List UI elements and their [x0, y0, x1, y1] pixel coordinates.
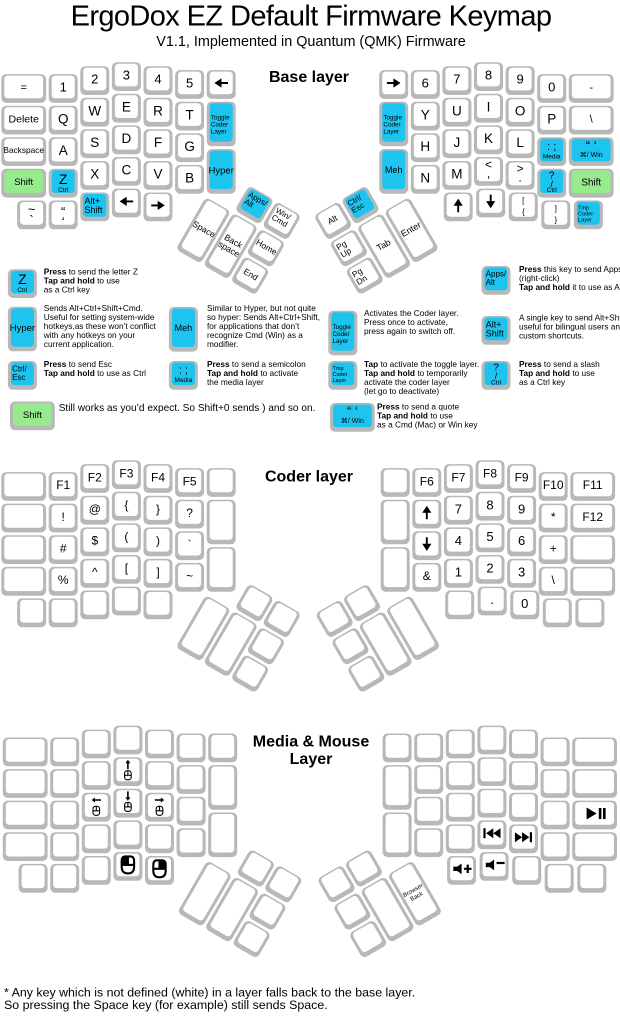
svg-text:Layer: Layer: [211, 129, 227, 136]
svg-text:Backspace: Backspace: [3, 145, 44, 155]
svg-text:Media: Media: [543, 153, 561, 160]
svg-text:Layer: Layer: [578, 218, 592, 224]
svg-text:Delete: Delete: [9, 113, 40, 125]
svg-text:Coder: Coder: [333, 331, 350, 338]
svg-text:Hyper: Hyper: [209, 165, 234, 176]
svg-text:&: &: [423, 569, 431, 583]
svg-text:So pressing the Space key (for: So pressing the Space key (for example) …: [4, 998, 328, 1012]
svg-text:}: }: [156, 502, 160, 516]
svg-text:Shift: Shift: [85, 205, 104, 215]
svg-text:5: 5: [486, 529, 493, 544]
svg-text:-: -: [589, 82, 593, 94]
svg-text:as a Cmd (Mac) or Win key: as a Cmd (Mac) or Win key: [377, 420, 478, 430]
svg-text:C: C: [122, 163, 132, 178]
svg-text:Layer: Layer: [383, 129, 399, 136]
svg-text:modifier.: modifier.: [207, 339, 238, 349]
svg-text:Shift: Shift: [581, 177, 601, 188]
svg-text:(: (: [124, 530, 128, 544]
svg-text:4: 4: [455, 533, 462, 548]
svg-text:!: !: [62, 510, 65, 524]
svg-text:D: D: [122, 131, 132, 146]
svg-text:as a Ctrl key: as a Ctrl key: [519, 377, 566, 387]
svg-text:F2: F2: [88, 470, 102, 484]
svg-text:Media & Mouse: Media & Mouse: [253, 734, 370, 751]
svg-text:X: X: [90, 167, 99, 182]
svg-text:F12: F12: [582, 510, 603, 524]
svg-text:M: M: [451, 167, 462, 182]
svg-text:G: G: [184, 139, 195, 154]
svg-text:F4: F4: [151, 470, 165, 484]
svg-text:.: .: [490, 592, 494, 607]
svg-text:F5: F5: [183, 474, 197, 488]
svg-text:]: ]: [156, 565, 159, 579]
svg-text:Z: Z: [59, 171, 68, 187]
svg-text:7: 7: [453, 72, 460, 87]
svg-text:Toggle: Toggle: [211, 115, 230, 122]
svg-text:F7: F7: [451, 470, 465, 484]
svg-text:S: S: [90, 135, 99, 150]
svg-text:): ): [156, 534, 160, 548]
svg-text:K: K: [484, 131, 493, 146]
svg-text:R: R: [153, 104, 163, 119]
svg-text:J: J: [454, 135, 461, 150]
svg-text:4: 4: [154, 72, 161, 87]
svg-text:1: 1: [60, 80, 67, 95]
svg-text:2: 2: [486, 561, 493, 576]
svg-text:Y: Y: [421, 107, 430, 122]
svg-text:F8: F8: [483, 466, 497, 480]
svg-text:8: 8: [486, 497, 493, 512]
svg-text:Coder: Coder: [383, 122, 400, 129]
svg-text:“ ‘: “ ‘: [347, 404, 358, 419]
svg-text:⌘/ Win: ⌘/ Win: [341, 417, 364, 425]
svg-text:‘: ‘: [62, 214, 65, 229]
svg-text:Toggle: Toggle: [333, 324, 352, 331]
svg-text:6: 6: [518, 533, 525, 548]
svg-text:Tap and hold to use as Ctrl: Tap and hold to use as Ctrl: [44, 368, 146, 378]
svg-text:Still works as you’d expect. S: Still works as you’d expect. So Shift+0 …: [59, 403, 316, 414]
svg-text:Ctrl: Ctrl: [491, 379, 502, 386]
svg-text:press again to switch off.: press again to switch off.: [364, 326, 455, 336]
svg-text:Shift: Shift: [23, 410, 42, 421]
svg-text:2: 2: [91, 72, 98, 87]
svg-text:Coder: Coder: [211, 122, 228, 129]
svg-text:⌘/ Win: ⌘/ Win: [580, 151, 603, 159]
svg-text:Q: Q: [58, 111, 69, 126]
svg-text:Shift: Shift: [14, 177, 33, 188]
svg-text:3: 3: [123, 68, 130, 83]
svg-text:O: O: [515, 104, 526, 119]
svg-text:Layer: Layer: [290, 751, 333, 768]
svg-text:#: #: [60, 541, 67, 555]
svg-text:T: T: [185, 107, 193, 122]
svg-text:9: 9: [516, 72, 523, 87]
svg-text:*: *: [551, 510, 556, 524]
svg-text:: ;: : ;: [547, 141, 556, 153]
svg-text:P: P: [547, 111, 556, 126]
svg-text:as a Ctrl key: as a Ctrl key: [44, 285, 91, 295]
svg-text:Hyper: Hyper: [10, 323, 35, 334]
svg-text:$: $: [91, 534, 98, 548]
svg-text:current application.: current application.: [44, 339, 114, 349]
svg-text:^: ^: [92, 565, 98, 579]
svg-text:E: E: [122, 100, 131, 115]
svg-text:=: =: [20, 82, 26, 94]
svg-text:7: 7: [455, 501, 462, 516]
svg-text:]: ]: [555, 204, 557, 213]
svg-text:Ctrl: Ctrl: [58, 187, 69, 194]
svg-text:F9: F9: [515, 470, 529, 484]
svg-text:W: W: [88, 104, 101, 119]
svg-text:Ctrl: Ctrl: [547, 187, 558, 194]
svg-text:A: A: [59, 143, 68, 158]
svg-text:5: 5: [186, 76, 193, 91]
svg-text:F1: F1: [56, 478, 70, 492]
svg-text:Tap and hold it to use as Alt: Tap and hold it to use as Alt: [519, 282, 620, 292]
svg-text:Shift: Shift: [486, 329, 505, 339]
svg-text:I: I: [487, 100, 491, 115]
svg-text:F: F: [154, 135, 162, 150]
svg-text:Toggle: Toggle: [383, 115, 402, 122]
svg-text:the media layer: the media layer: [207, 377, 264, 387]
svg-text:{: {: [124, 498, 128, 512]
svg-text:: ;: : ;: [179, 365, 188, 377]
svg-text:Ctrl: Ctrl: [17, 287, 28, 294]
svg-text:Coder layer: Coder layer: [265, 469, 353, 486]
svg-text:}: }: [554, 216, 557, 225]
svg-text:Media: Media: [175, 377, 193, 384]
svg-text:0: 0: [548, 80, 555, 95]
svg-text:.: .: [518, 171, 521, 185]
svg-text:U: U: [452, 104, 462, 119]
svg-text:@: @: [89, 502, 101, 516]
svg-text:B: B: [185, 171, 194, 186]
svg-text:F10: F10: [543, 478, 564, 492]
svg-text:F11: F11: [583, 478, 603, 492]
svg-text:Meh: Meh: [175, 323, 193, 333]
svg-text:Alt: Alt: [486, 278, 496, 287]
svg-text:Base layer: Base layer: [269, 69, 349, 86]
svg-text:?: ?: [186, 506, 193, 520]
svg-text:N: N: [420, 171, 430, 186]
svg-text:F6: F6: [420, 474, 434, 488]
svg-text:Esc: Esc: [12, 373, 25, 382]
svg-text:8: 8: [485, 68, 492, 83]
svg-text:custom shortcuts.: custom shortcuts.: [519, 331, 584, 341]
svg-text:“ ‘: “ ‘: [586, 138, 597, 153]
svg-text:0: 0: [521, 596, 528, 611]
svg-text:(let go to deactivate): (let go to deactivate): [364, 386, 439, 396]
svg-text:9: 9: [518, 501, 525, 516]
svg-text:1: 1: [455, 565, 462, 580]
svg-text:Layer: Layer: [333, 378, 347, 384]
svg-text:{: {: [522, 208, 525, 217]
svg-text:`: `: [29, 213, 33, 228]
svg-text:~: ~: [186, 569, 193, 583]
svg-text:Z: Z: [18, 271, 27, 287]
svg-text:ErgoDox EZ Default Firmware Ke: ErgoDox EZ Default Firmware Keymap: [71, 1, 552, 33]
svg-text:Layer: Layer: [333, 338, 349, 345]
svg-text:F3: F3: [119, 466, 133, 480]
svg-text:,: ,: [487, 167, 490, 181]
svg-text:%: %: [58, 573, 69, 587]
svg-text:V1.1, Implemented in Quantum (: V1.1, Implemented in Quantum (QMK) Firmw…: [156, 34, 466, 50]
svg-text:H: H: [420, 139, 430, 154]
svg-text:V: V: [153, 167, 162, 182]
svg-text:6: 6: [422, 76, 429, 91]
svg-text:L: L: [516, 135, 524, 150]
svg-text:+: +: [550, 541, 557, 555]
svg-text:`: `: [188, 538, 192, 552]
svg-text:Meh: Meh: [385, 165, 403, 175]
svg-text:3: 3: [518, 565, 525, 580]
